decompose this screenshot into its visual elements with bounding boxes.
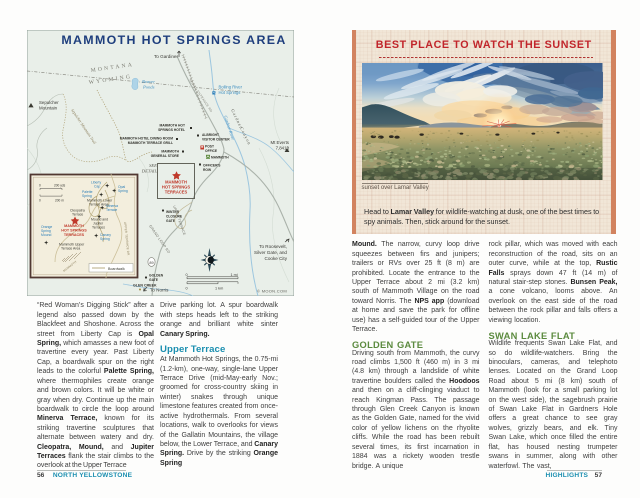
- svg-text:Beaver: Beaver: [142, 79, 155, 84]
- svg-text:Spring: Spring: [100, 237, 110, 241]
- svg-text:TERRACES: TERRACES: [165, 190, 188, 195]
- svg-text:TERRACES: TERRACES: [64, 233, 85, 237]
- svg-text:OFFICE: OFFICE: [205, 149, 218, 153]
- svg-text:1 mi: 1 mi: [231, 273, 238, 277]
- svg-text:SEE: SEE: [149, 163, 157, 168]
- svg-text:Cap: Cap: [94, 185, 100, 189]
- svg-text:Ponds: Ponds: [142, 85, 155, 90]
- svg-text:0: 0: [186, 287, 188, 291]
- svg-text:Terrace Area: Terrace Area: [89, 203, 108, 207]
- svg-text:Silver Gate, and: Silver Gate, and: [254, 250, 287, 255]
- svg-text:© MOON.COM: © MOON.COM: [257, 289, 287, 294]
- svg-text:GATE: GATE: [149, 278, 159, 282]
- svg-text:SPRINGS HOTEL: SPRINGS HOTEL: [158, 128, 185, 132]
- svg-text:DETAIL: DETAIL: [141, 169, 158, 174]
- svg-text:MAMMOTH HOTEL DINING ROOM: MAMMOTH HOTEL DINING ROOM: [120, 137, 173, 141]
- svg-text:Terrace: Terrace: [106, 208, 117, 212]
- svg-text:Spring: Spring: [118, 189, 128, 193]
- svg-text:1 km: 1 km: [215, 287, 223, 291]
- svg-text:GATE: GATE: [166, 219, 176, 223]
- svg-text:89: 89: [149, 261, 153, 265]
- svg-text:ROW: ROW: [203, 168, 212, 172]
- svg-text:GLEN CREEK: GLEN CREEK: [133, 284, 157, 288]
- svg-text:0: 0: [39, 184, 41, 188]
- svg-text:Boiling River: Boiling River: [219, 85, 243, 90]
- svg-text:MAMMOTH: MAMMOTH: [211, 156, 229, 160]
- svg-text:To Roosevelt,: To Roosevelt,: [259, 244, 287, 249]
- svg-text:200 m: 200 m: [55, 199, 64, 203]
- svg-text:MAMMOTH HOT SPRINGS AREA: MAMMOTH HOT SPRINGS AREA: [61, 33, 286, 47]
- svg-text:Terraces: Terraces: [92, 226, 105, 230]
- svg-text:Boardwalk: Boardwalk: [108, 267, 125, 271]
- svg-text:Terrace: Terrace: [72, 213, 83, 217]
- svg-text:OFFICER'S: OFFICER'S: [203, 164, 221, 168]
- svg-text:Hot Springs: Hot Springs: [219, 90, 241, 95]
- svg-text:MAMMOTH TERRACE GRILL: MAMMOTH TERRACE GRILL: [128, 141, 173, 145]
- svg-text:Cooke City: Cooke City: [265, 256, 288, 261]
- svg-text:200 yds: 200 yds: [54, 184, 66, 188]
- svg-text:Spring: Spring: [82, 194, 92, 198]
- svg-text:HOT SPRINGS: HOT SPRINGS: [61, 229, 87, 233]
- svg-text:To Gardiner: To Gardiner: [154, 54, 178, 59]
- svg-text:MAMMOTH HOT: MAMMOTH HOT: [160, 124, 185, 128]
- svg-text:GENERAL STORE: GENERAL STORE: [151, 154, 180, 158]
- svg-text:MAMMOTH: MAMMOTH: [64, 224, 84, 228]
- svg-text:Mound: Mound: [41, 233, 51, 237]
- svg-text:0: 0: [39, 199, 41, 203]
- svg-text:0: 0: [186, 273, 188, 277]
- svg-text:Mountain: Mountain: [39, 106, 58, 111]
- svg-text:MAMMOTH: MAMMOTH: [161, 150, 179, 154]
- svg-text:Sepulcher: Sepulcher: [39, 100, 59, 105]
- svg-text:Terrace Area: Terrace Area: [61, 247, 80, 251]
- svg-text:GOLDEN: GOLDEN: [149, 274, 164, 278]
- svg-text:VISITOR CENTER: VISITOR CENTER: [202, 138, 230, 142]
- svg-text:ALBRIGHT: ALBRIGHT: [202, 133, 219, 137]
- svg-text:Mt Everts: Mt Everts: [270, 140, 289, 145]
- svg-text:To Norris: To Norris: [150, 288, 169, 293]
- svg-text:POST: POST: [205, 145, 214, 149]
